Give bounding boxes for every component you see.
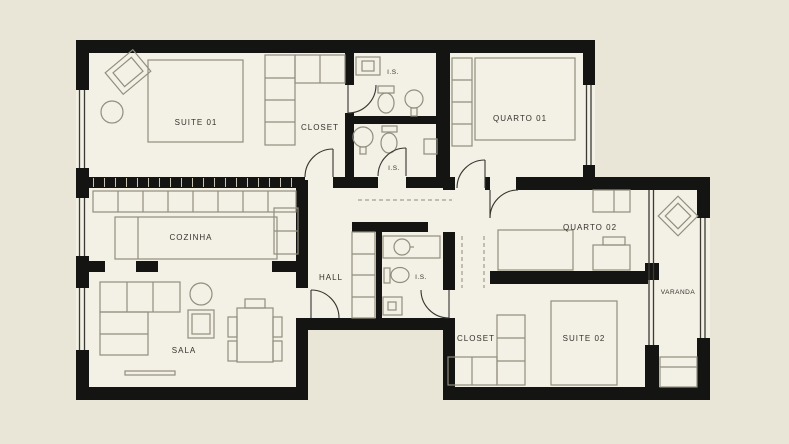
room-label-is-center: I.S.: [415, 274, 427, 281]
room-label-quarto-02: QUARTO 02: [563, 223, 617, 232]
room-label-suite-01: SUITE 01: [175, 118, 218, 127]
window-cozinha-left: [76, 198, 89, 256]
room-label-closet-bottom: CLOSET: [457, 334, 495, 343]
room-label-hall: HALL: [319, 273, 343, 282]
window-suite01-left: [76, 90, 89, 168]
window-sala-left: [76, 288, 89, 350]
room-label-is-top: I.S.: [387, 69, 399, 76]
room-label-sala: SALA: [172, 346, 196, 355]
window-varanda-right: [697, 218, 710, 338]
room-label-cozinha: COZINHA: [170, 233, 213, 242]
room-label-suite-02: SUITE 02: [563, 334, 606, 343]
room-label-varanda: VARANDA: [661, 289, 696, 296]
room-label-quarto-01: QUARTO 01: [493, 114, 547, 123]
window-quarto01-right: [583, 85, 595, 165]
floor-plan: SUITE 01 CLOSET I.S. I.S. QUARTO 01 COZI…: [0, 0, 789, 444]
room-label-is-mid: I.S.: [388, 165, 400, 172]
room-label-closet-top: CLOSET: [301, 123, 339, 132]
